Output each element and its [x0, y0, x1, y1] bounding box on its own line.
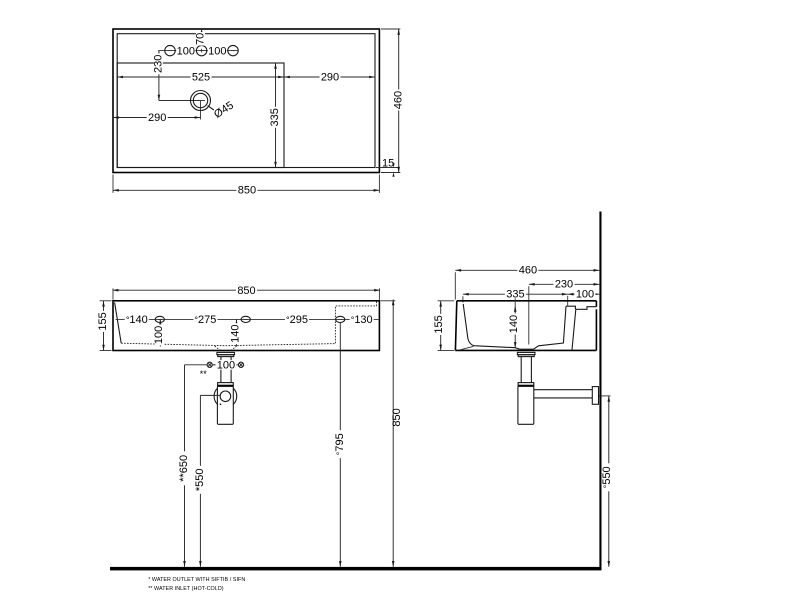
svg-text:100: 100: [177, 45, 195, 57]
svg-text:**: **: [200, 369, 208, 379]
svg-text:460: 460: [519, 265, 537, 277]
svg-text:335: 335: [506, 289, 524, 301]
svg-text:230: 230: [555, 279, 573, 291]
svg-text:100: 100: [576, 289, 594, 301]
svg-text:155: 155: [433, 315, 445, 333]
svg-text:100: 100: [217, 359, 235, 371]
svg-text:335: 335: [269, 108, 281, 126]
svg-text:230: 230: [152, 55, 164, 73]
svg-text:**650: **650: [178, 455, 190, 482]
svg-text:100: 100: [153, 326, 165, 344]
svg-text:°275: °275: [194, 314, 216, 326]
svg-text:15: 15: [382, 158, 394, 170]
svg-text:°295: °295: [286, 314, 308, 326]
svg-text:100: 100: [208, 45, 226, 57]
svg-text:290: 290: [321, 71, 339, 83]
svg-text:°795: °795: [334, 433, 346, 455]
svg-text:°140: °140: [126, 314, 148, 326]
svg-text:525: 525: [192, 71, 210, 83]
svg-text:70: 70: [194, 33, 206, 45]
svg-text:°130: °130: [351, 314, 373, 326]
svg-text:155: 155: [97, 312, 109, 330]
svg-text:290: 290: [148, 112, 166, 124]
svg-text:** WATER INLET (HOT-COLD): ** WATER INLET (HOT-COLD): [148, 586, 224, 592]
svg-text:140: 140: [508, 315, 520, 333]
svg-text:*550: *550: [194, 468, 206, 491]
svg-text:850: 850: [238, 185, 256, 197]
svg-text:850: 850: [391, 408, 403, 426]
svg-text:°550: °550: [601, 466, 613, 488]
svg-text:* WATER OUTLET WITH SIFTIB /: * WATER OUTLET WITH SIFTIB / SIFN: [148, 577, 245, 583]
svg-text:850: 850: [237, 285, 255, 297]
svg-text:460: 460: [393, 91, 405, 109]
svg-text:140: 140: [229, 325, 241, 343]
